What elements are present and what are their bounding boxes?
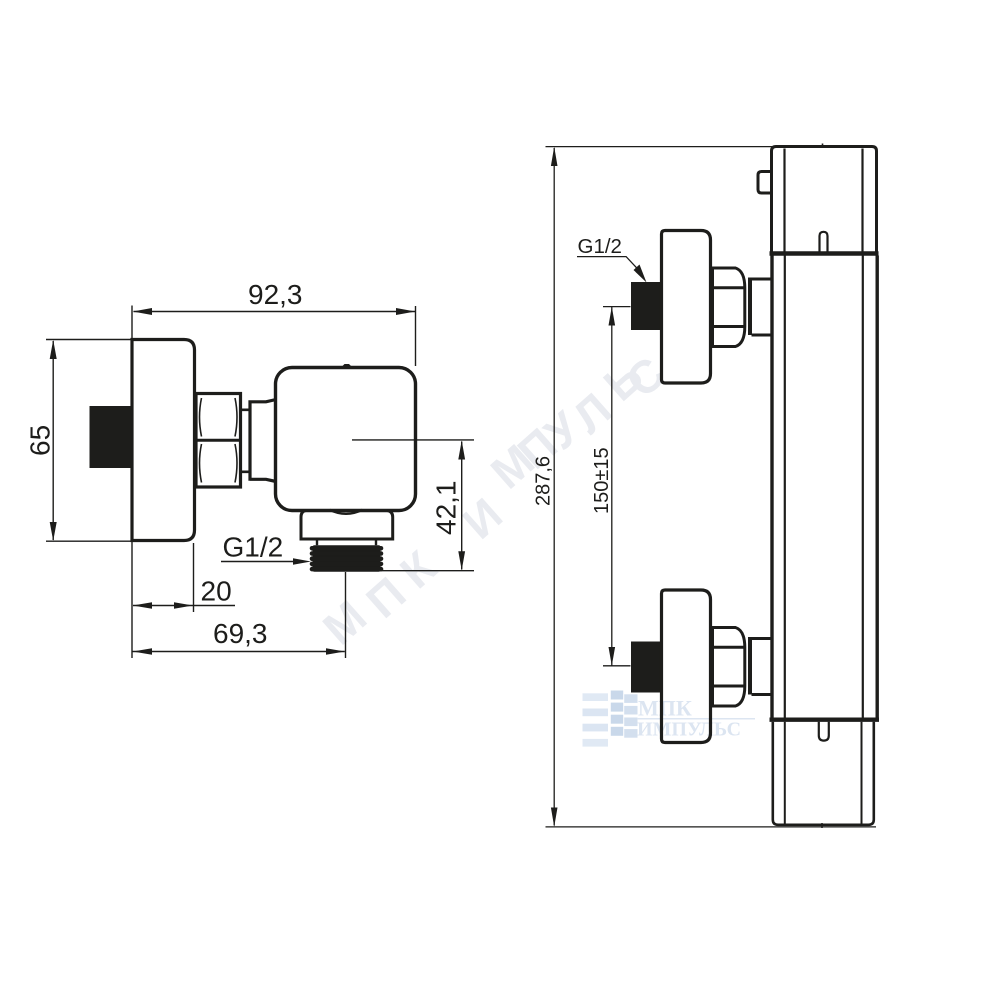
svg-text:ИМПУЛЬС: ИМПУЛЬС	[637, 719, 741, 741]
svg-text:20: 20	[201, 575, 232, 606]
svg-text:МПК: МПК	[638, 696, 692, 721]
svg-text:150±15: 150±15	[591, 447, 613, 514]
svg-text:G1/2: G1/2	[578, 235, 622, 258]
svg-text:287,6: 287,6	[533, 456, 555, 506]
svg-text:G1/2: G1/2	[223, 532, 284, 563]
svg-text:65: 65	[25, 425, 56, 456]
svg-text:69,3: 69,3	[213, 618, 268, 649]
svg-text:42,1: 42,1	[431, 481, 462, 536]
svg-text:92,3: 92,3	[248, 279, 303, 310]
